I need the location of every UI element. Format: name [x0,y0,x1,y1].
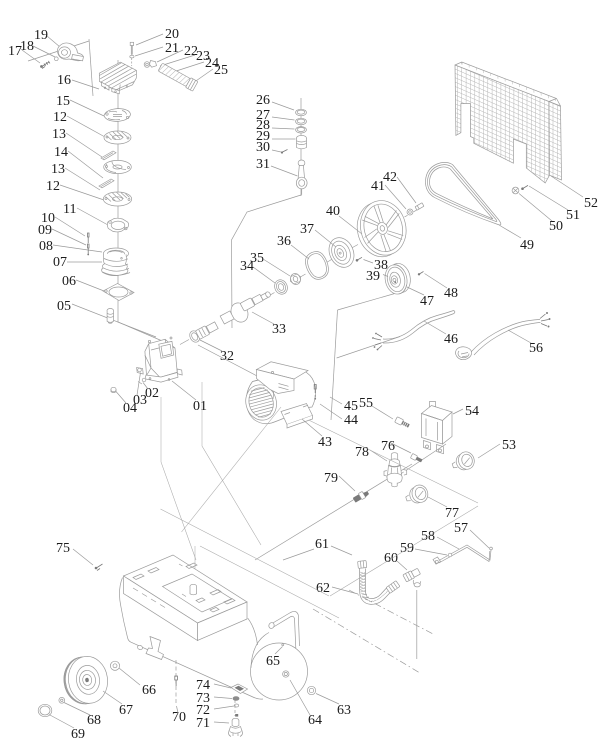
svg-text:21: 21 [165,41,179,56]
svg-text:32: 32 [220,349,234,364]
svg-text:71: 71 [196,716,210,731]
svg-text:19: 19 [34,28,48,43]
svg-text:39: 39 [366,269,380,284]
svg-text:57: 57 [454,521,468,536]
svg-text:05: 05 [57,299,71,314]
svg-text:76: 76 [381,439,395,454]
svg-text:68: 68 [87,713,101,728]
svg-text:31: 31 [256,157,270,172]
svg-text:26: 26 [256,93,270,108]
svg-text:40: 40 [326,204,340,219]
svg-text:79: 79 [324,471,338,486]
svg-text:63: 63 [337,703,351,718]
svg-text:56: 56 [529,341,543,356]
svg-text:47: 47 [420,294,434,309]
svg-text:12: 12 [46,179,60,194]
svg-text:49: 49 [520,238,534,253]
svg-text:34: 34 [240,259,254,274]
svg-text:69: 69 [71,727,85,742]
svg-text:08: 08 [39,239,53,254]
svg-text:48: 48 [444,286,458,301]
svg-text:42: 42 [383,170,397,185]
svg-text:14: 14 [54,145,68,160]
svg-text:15: 15 [56,94,70,109]
svg-text:75: 75 [56,541,70,556]
svg-text:07: 07 [53,255,67,270]
svg-text:33: 33 [272,322,286,337]
svg-text:12: 12 [53,110,67,125]
svg-text:44: 44 [344,413,358,428]
svg-text:46: 46 [444,332,458,347]
svg-text:54: 54 [465,404,479,419]
svg-text:13: 13 [52,127,66,142]
svg-text:06: 06 [62,274,76,289]
svg-text:53: 53 [502,438,516,453]
svg-text:59: 59 [400,541,414,556]
svg-text:43: 43 [318,435,332,450]
svg-text:25: 25 [214,63,228,78]
svg-text:78: 78 [355,445,369,460]
svg-text:67: 67 [119,703,133,718]
svg-text:30: 30 [256,140,270,155]
svg-text:64: 64 [308,713,322,728]
svg-text:55: 55 [359,396,373,411]
svg-text:66: 66 [142,683,156,698]
svg-text:01: 01 [193,399,207,414]
svg-text:62: 62 [316,581,330,596]
svg-text:51: 51 [566,208,580,223]
svg-text:13: 13 [51,162,65,177]
svg-text:60: 60 [384,551,398,566]
svg-text:37: 37 [300,222,314,237]
svg-text:04: 04 [123,401,137,416]
svg-text:36: 36 [277,234,291,249]
svg-text:09: 09 [38,223,52,238]
svg-text:16: 16 [57,73,71,88]
svg-text:52: 52 [584,196,598,211]
svg-text:20: 20 [165,27,179,42]
svg-text:11: 11 [63,202,76,217]
svg-text:65: 65 [266,654,280,669]
svg-text:45: 45 [344,399,358,414]
svg-text:61: 61 [315,537,329,552]
svg-text:70: 70 [172,710,186,725]
svg-text:50: 50 [549,219,563,234]
svg-text:18: 18 [20,39,34,54]
